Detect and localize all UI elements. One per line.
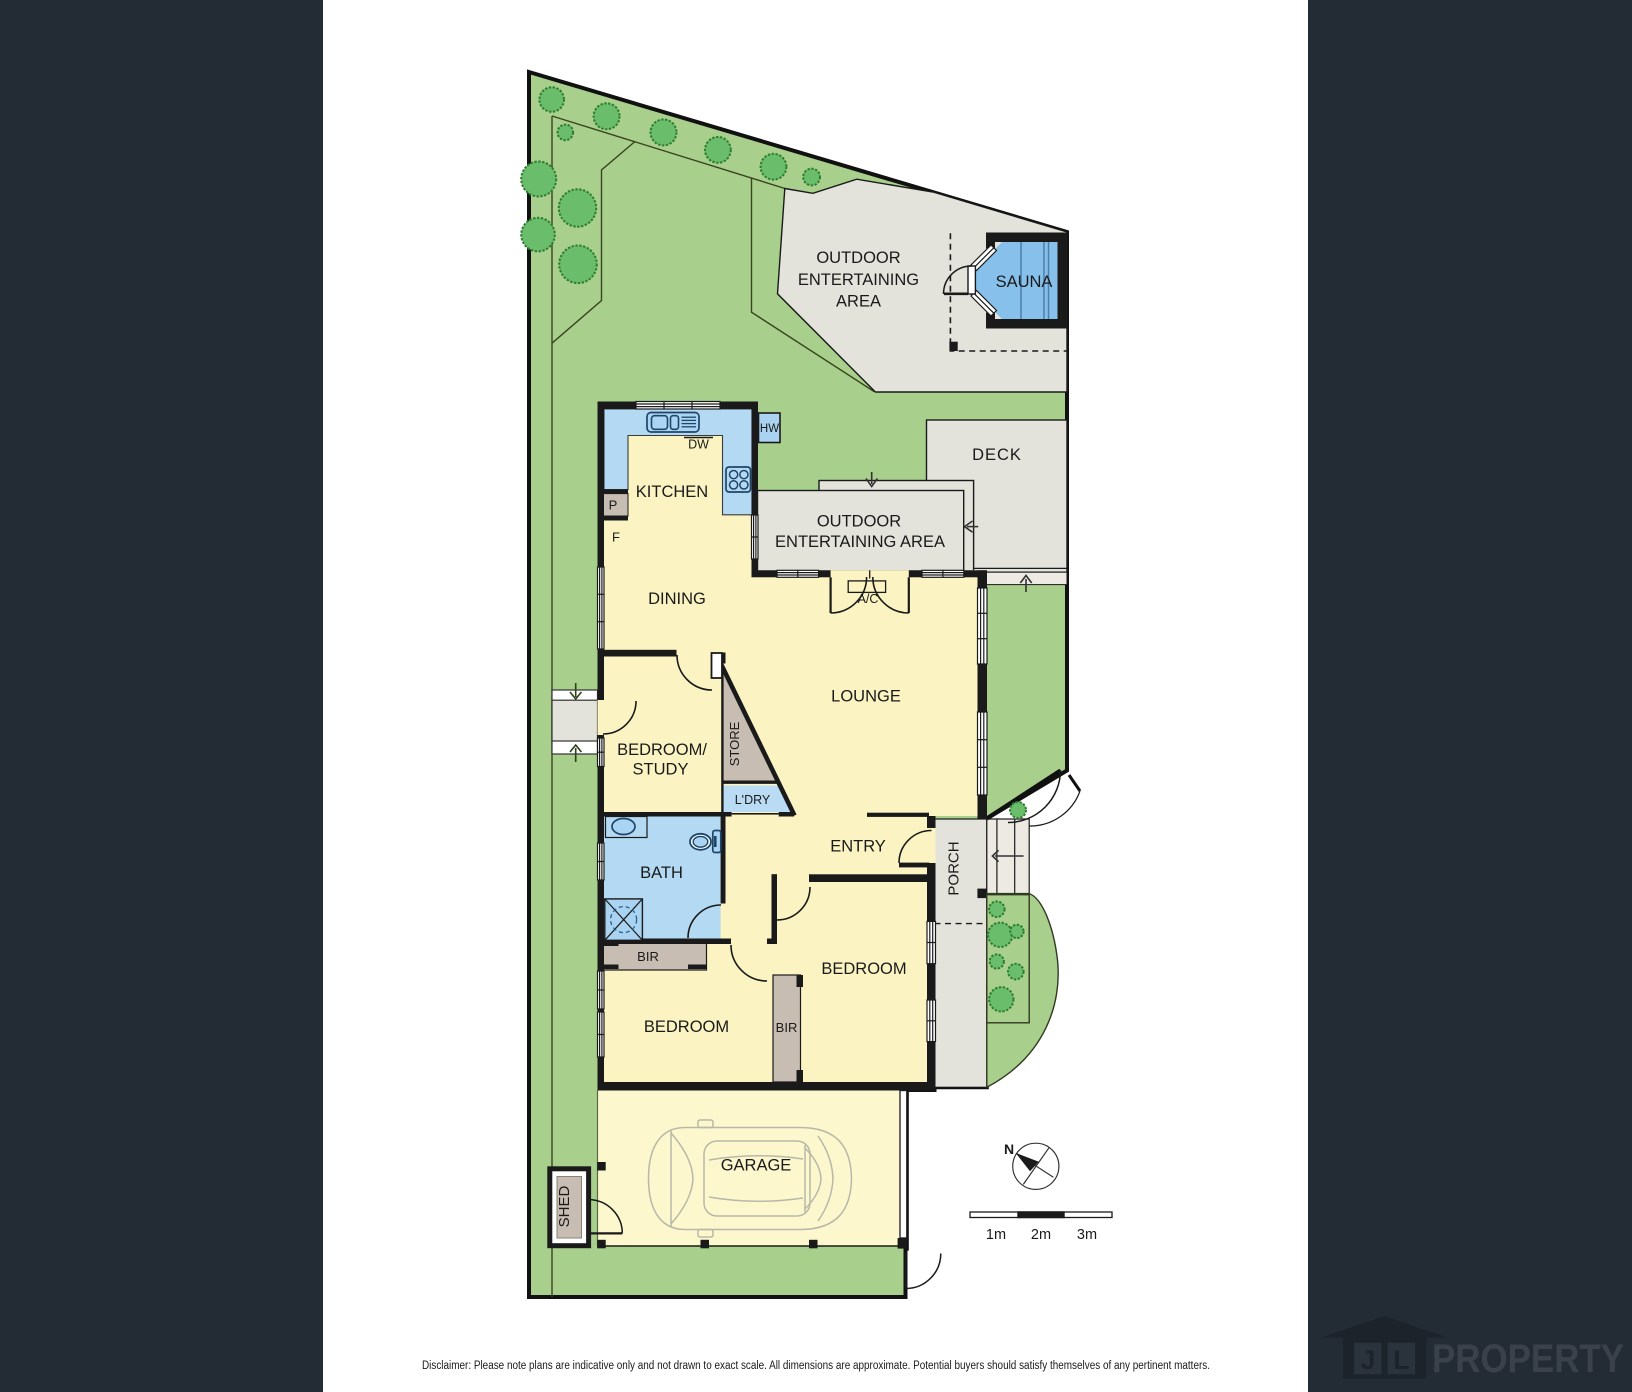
svg-text:OUTDOOR: OUTDOOR — [816, 249, 900, 267]
svg-text:DW: DW — [688, 438, 709, 452]
svg-text:DECK: DECK — [972, 446, 1022, 464]
svg-text:J: J — [1360, 1345, 1375, 1375]
svg-text:L'DRY: L'DRY — [735, 793, 771, 807]
svg-text:STUDY: STUDY — [633, 761, 689, 779]
svg-text:PORCH: PORCH — [946, 841, 963, 895]
svg-text:BATH: BATH — [640, 864, 683, 882]
svg-text:3m: 3m — [1077, 1227, 1097, 1243]
svg-text:F: F — [612, 530, 620, 545]
svg-text:HW: HW — [760, 423, 779, 435]
svg-text:BEDROOM: BEDROOM — [644, 1018, 729, 1036]
svg-text:STORE: STORE — [727, 721, 742, 766]
svg-text:1m: 1m — [986, 1227, 1006, 1243]
svg-text:LOUNGE: LOUNGE — [831, 688, 901, 706]
svg-text:L: L — [1393, 1345, 1410, 1375]
svg-text:SAUNA: SAUNA — [996, 273, 1053, 291]
svg-text:ENTERTAINING AREA: ENTERTAINING AREA — [775, 533, 945, 551]
svg-text:OUTDOOR: OUTDOOR — [817, 513, 901, 531]
svg-text:A/C: A/C — [858, 592, 879, 606]
svg-text:BIR: BIR — [776, 1020, 798, 1035]
svg-text:KITCHEN: KITCHEN — [636, 483, 708, 501]
svg-text:ENTERTAINING: ENTERTAINING — [798, 271, 919, 289]
svg-text:ENTRY: ENTRY — [830, 838, 886, 856]
svg-text:SHED: SHED — [556, 1186, 573, 1228]
svg-text:P: P — [609, 498, 618, 513]
svg-text:GARAGE: GARAGE — [721, 1157, 792, 1175]
svg-text:DINING: DINING — [648, 590, 706, 608]
svg-text:N: N — [1004, 1141, 1014, 1157]
svg-text:AREA: AREA — [836, 293, 881, 311]
svg-text:Disclaimer: Please note plans: Disclaimer: Please note plans are indica… — [422, 1360, 1210, 1372]
svg-text:BEDROOM/: BEDROOM/ — [617, 741, 707, 759]
svg-text:BEDROOM: BEDROOM — [821, 960, 906, 978]
svg-text:PROPERTY: PROPERTY — [1432, 1337, 1624, 1381]
svg-text:2m: 2m — [1031, 1227, 1051, 1243]
svg-text:BIR: BIR — [637, 949, 659, 964]
